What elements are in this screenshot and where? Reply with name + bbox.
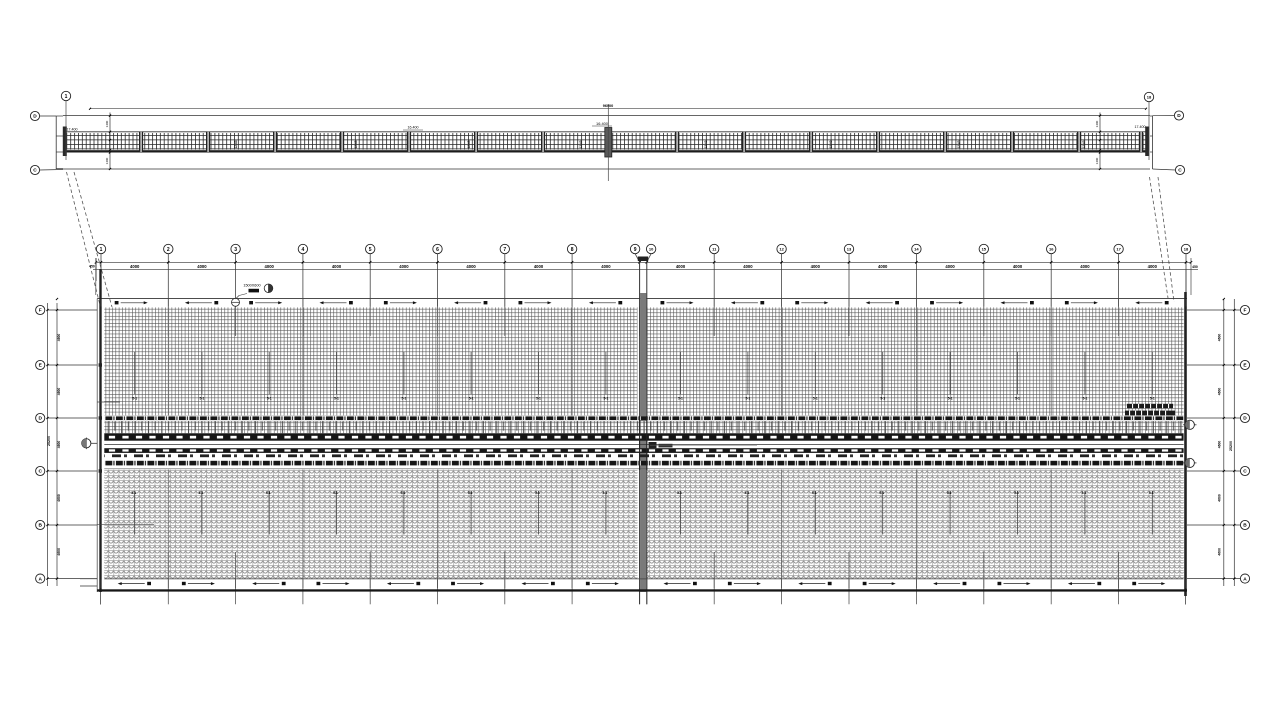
svg-text:1: 1	[100, 247, 103, 253]
svg-text:1500X600: 1500X600	[243, 284, 260, 288]
svg-text:5-1: 5-1	[402, 397, 407, 401]
svg-text:450: 450	[89, 265, 95, 269]
svg-text:5-1: 5-1	[947, 491, 952, 495]
svg-text:4000: 4000	[197, 264, 207, 269]
svg-text:1400: 1400	[105, 157, 109, 164]
svg-text:4600: 4600	[1218, 548, 1222, 556]
svg-text:5-1: 5-1	[334, 397, 339, 401]
svg-text:16: 16	[1049, 246, 1054, 251]
svg-text:5-1: 5-1	[813, 397, 818, 401]
svg-text:5-1: 5-1	[746, 397, 751, 401]
svg-text:6: 6	[436, 247, 439, 253]
svg-text:14: 14	[914, 246, 919, 251]
svg-text:5-1: 5-1	[1150, 397, 1155, 401]
svg-text:5-1: 5-1	[948, 397, 953, 401]
svg-text:C: C	[1178, 168, 1182, 174]
svg-text:5-1: 5-1	[333, 491, 338, 495]
svg-text:4000: 4000	[1013, 264, 1023, 269]
svg-text:5-1: 5-1	[1149, 491, 1154, 495]
svg-text:5-1: 5-1	[266, 491, 271, 495]
svg-text:12.43: 12.43	[234, 140, 238, 148]
svg-text:5-1: 5-1	[1014, 491, 1019, 495]
svg-text:C: C	[33, 168, 37, 174]
svg-text:12.43: 12.43	[704, 140, 708, 148]
svg-text:B: B	[1243, 523, 1247, 529]
svg-text:4000: 4000	[743, 264, 753, 269]
svg-text:1: 1	[65, 94, 68, 100]
svg-text:5-1: 5-1	[603, 491, 608, 495]
svg-text:5-1: 5-1	[879, 491, 884, 495]
svg-text:C: C	[1243, 469, 1247, 475]
svg-text:5-1: 5-1	[131, 491, 136, 495]
svg-text:F: F	[39, 308, 42, 314]
svg-text:5-1: 5-1	[536, 397, 541, 401]
svg-text:5-1: 5-1	[132, 397, 137, 401]
svg-text:4000: 4000	[601, 264, 611, 269]
svg-text:4600: 4600	[1218, 494, 1222, 502]
svg-text:5-1: 5-1	[745, 491, 750, 495]
svg-text:F: F	[1244, 308, 1247, 314]
svg-text:1400: 1400	[105, 120, 109, 127]
svg-text:4: 4	[302, 247, 305, 253]
svg-text:4600: 4600	[57, 441, 61, 449]
svg-text:7: 7	[503, 247, 506, 253]
svg-text:D: D	[1243, 416, 1247, 422]
svg-text:5-1: 5-1	[535, 491, 540, 495]
svg-text:4000: 4000	[676, 264, 686, 269]
svg-text:15: 15	[982, 246, 987, 251]
svg-text:12.43: 12.43	[579, 140, 583, 148]
svg-text:25200: 25200	[1229, 441, 1233, 451]
svg-text:4600: 4600	[57, 494, 61, 502]
svg-text:4000: 4000	[332, 264, 342, 269]
svg-text:5-1: 5-1	[199, 491, 204, 495]
svg-text:4600: 4600	[57, 548, 61, 556]
svg-text:C: C	[38, 469, 42, 475]
svg-text:5-1: 5-1	[1083, 397, 1088, 401]
svg-text:16.400: 16.400	[408, 126, 419, 130]
svg-text:D: D	[1177, 113, 1181, 119]
svg-text:8: 8	[571, 247, 574, 253]
svg-text:5-1: 5-1	[1015, 397, 1020, 401]
svg-text:5-1: 5-1	[267, 397, 272, 401]
svg-text:12: 12	[779, 246, 784, 251]
svg-text:17.400: 17.400	[1135, 125, 1146, 129]
svg-text:5-1: 5-1	[401, 491, 406, 495]
svg-text:5-1: 5-1	[677, 491, 682, 495]
svg-text:5-1: 5-1	[812, 491, 817, 495]
svg-text:4600: 4600	[57, 388, 61, 396]
svg-text:4000: 4000	[811, 264, 821, 269]
svg-text:5-1: 5-1	[200, 397, 205, 401]
svg-text:A: A	[1243, 576, 1247, 582]
svg-text:4000: 4000	[1080, 264, 1090, 269]
svg-text:5-1: 5-1	[678, 397, 683, 401]
svg-text:3: 3	[234, 247, 237, 253]
svg-text:B: B	[38, 523, 42, 529]
svg-text:17: 17	[1116, 246, 1121, 251]
svg-text:16.400: 16.400	[596, 121, 609, 126]
svg-text:17.400: 17.400	[67, 128, 78, 132]
svg-text:5-1: 5-1	[469, 397, 474, 401]
svg-text:4600: 4600	[57, 334, 61, 342]
svg-text:12.43: 12.43	[354, 140, 358, 148]
svg-text:4000: 4000	[945, 264, 955, 269]
svg-text:18: 18	[1184, 246, 1189, 251]
svg-text:12.43: 12.43	[1082, 140, 1086, 148]
svg-text:A: A	[38, 576, 42, 582]
svg-text:5-1: 5-1	[1082, 491, 1087, 495]
svg-text:10: 10	[649, 246, 654, 251]
svg-text:4600: 4600	[1218, 441, 1222, 449]
svg-text:4000: 4000	[130, 264, 140, 269]
svg-text:5-1: 5-1	[604, 397, 609, 401]
svg-text:12.43: 12.43	[467, 140, 471, 148]
svg-text:13: 13	[847, 246, 852, 251]
svg-text:5-1: 5-1	[880, 397, 885, 401]
svg-text:4000: 4000	[399, 264, 409, 269]
svg-text:1400: 1400	[1095, 120, 1099, 127]
svg-text:18: 18	[1147, 94, 1152, 99]
svg-text:12.43: 12.43	[829, 140, 833, 148]
svg-text:5: 5	[369, 247, 372, 253]
svg-text:4600: 4600	[1218, 334, 1222, 342]
svg-text:12.43: 12.43	[957, 140, 961, 148]
svg-text:D: D	[38, 416, 42, 422]
svg-text:D: D	[33, 114, 37, 120]
svg-text:9: 9	[634, 247, 637, 253]
svg-text:1400: 1400	[1095, 157, 1099, 164]
svg-text:4000: 4000	[265, 264, 275, 269]
svg-text:4000: 4000	[534, 264, 544, 269]
svg-text:4000: 4000	[1148, 264, 1158, 269]
svg-text:2: 2	[167, 247, 170, 253]
svg-text:4000: 4000	[466, 264, 476, 269]
svg-text:5-1: 5-1	[468, 491, 473, 495]
svg-text:4600: 4600	[1218, 388, 1222, 396]
svg-text:25200: 25200	[47, 436, 51, 446]
svg-text:4000: 4000	[878, 264, 888, 269]
svg-text:450: 450	[1192, 265, 1198, 269]
